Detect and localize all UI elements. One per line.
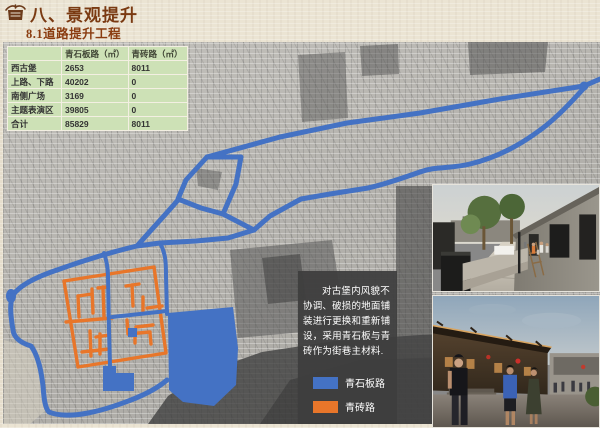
note-panel: 对古堡内风貌不协调、破损的地面铺装进行更换和重新铺设，采用青石板与青砖作为街巷主… (298, 271, 397, 424)
cell-value: 8011 (128, 117, 187, 131)
header-cell: 青石板路（㎡） (62, 47, 129, 61)
row-label: 南侧广场 (8, 89, 62, 103)
cell-value: 0 (128, 75, 187, 89)
cell-value: 0 (128, 103, 187, 117)
header-cell (8, 47, 62, 61)
cell-value: 3169 (62, 89, 129, 103)
seal-icon (4, 3, 27, 23)
legend-item-stone-road: 青石板路 (313, 375, 393, 390)
photo-street-daytime (432, 184, 600, 292)
cell-value: 8011 (128, 61, 187, 75)
row-label: 西古堡 (8, 61, 62, 75)
header-cell: 青砖路（㎡） (128, 47, 187, 61)
cell-value: 40202 (62, 75, 129, 89)
table-row: 西古堡 2653 8011 (8, 61, 188, 75)
legend-label: 青砖路 (345, 399, 375, 414)
table-row: 主题表演区 39805 0 (8, 103, 188, 117)
map-legend: 青石板路 青砖路 (313, 375, 393, 423)
table-row: 南侧广场 3169 0 (8, 89, 188, 103)
cell-value: 85829 (62, 117, 129, 131)
legend-label: 青石板路 (345, 375, 385, 390)
table-row-total: 合计 85829 8011 (8, 117, 188, 131)
cell-value: 0 (128, 89, 187, 103)
table-header-row: 青石板路（㎡） 青砖路（㎡） (8, 47, 188, 61)
table-row: 上路、下路 40202 0 (8, 75, 188, 89)
note-text: 对古堡内风貌不协调、破损的地面铺装进行更换和重新铺设，采用青石板与青砖作为街巷主… (298, 271, 397, 359)
cell-value: 2653 (62, 61, 129, 75)
cell-value: 39805 (62, 103, 129, 117)
row-label: 上路、下路 (8, 75, 62, 89)
legend-item-brick-road: 青砖路 (313, 399, 393, 414)
photo-street-dusk (432, 295, 600, 428)
brick-road-swatch (313, 401, 338, 413)
road-area-table: 青石板路（㎡） 青砖路（㎡） 西古堡 2653 8011 上路、下路 40202… (7, 46, 188, 131)
row-label: 主题表演区 (8, 103, 62, 117)
page-subtitle: 8.1道路提升工程 (26, 23, 121, 42)
stone-road-swatch (313, 377, 338, 389)
row-label: 合计 (8, 117, 62, 131)
presentation-slide: 八、景观提升 8.1道路提升工程 (0, 0, 600, 428)
